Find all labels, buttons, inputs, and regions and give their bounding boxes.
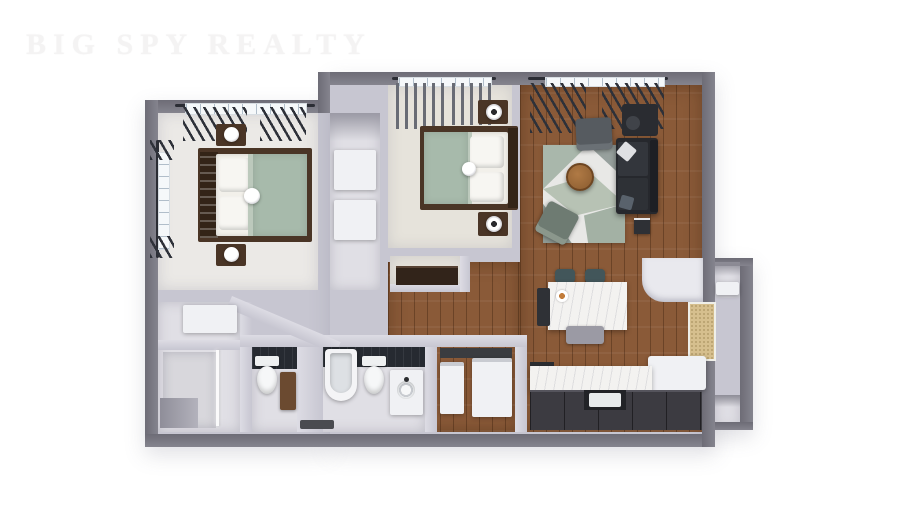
curtains-icon (150, 236, 174, 258)
closet-column-shadow (330, 113, 380, 141)
outer-wall-bottom (145, 434, 715, 447)
wood-vanity-cabinet (280, 372, 296, 410)
outer-wall-right (702, 72, 715, 447)
entry-door-mat (688, 302, 716, 361)
curtains-icon (260, 107, 306, 141)
gray-armchair (575, 117, 613, 151)
side-table (634, 218, 650, 234)
bed-headboard (508, 128, 518, 208)
curtains-icon (150, 140, 174, 160)
round-lamp-icon (486, 104, 502, 120)
wall-bath2-laundry (425, 347, 437, 432)
closet-shelf-box (183, 305, 237, 333)
floor-plan-render: BIG SPY REALTY (0, 0, 900, 506)
desk-chair (626, 116, 640, 130)
wall-hall-bathrooms (240, 335, 527, 347)
dresser (396, 266, 458, 285)
trash-bin (537, 288, 550, 326)
right-nook-shelf (716, 282, 739, 295)
round-lamp-icon (486, 216, 502, 232)
toilet (255, 356, 279, 366)
white-bench (648, 356, 706, 390)
wall-laundry-kitchen (515, 347, 527, 432)
bed-pillow (219, 158, 251, 192)
wall-dresser-nook-bottom (390, 284, 465, 292)
wall-closet-shower (158, 340, 240, 350)
washer (440, 362, 464, 414)
dining-chair (566, 326, 604, 344)
outer-wall-bump-right (740, 258, 753, 430)
fruit-plate (556, 290, 568, 302)
bar-stool (555, 269, 575, 283)
toilet (362, 356, 386, 366)
bar-stool (585, 269, 605, 283)
bathtub-basin (330, 353, 352, 393)
kitchen-sink-basin (589, 393, 621, 407)
sofa-backrest (650, 140, 658, 212)
faucet-icon (404, 377, 409, 382)
storage-nook-shadow (160, 398, 198, 428)
table-lamp-icon (224, 247, 239, 262)
round-coffee-table (566, 163, 594, 191)
round-pillow (244, 188, 260, 204)
bed-pillow (470, 172, 504, 202)
round-sink (397, 381, 415, 399)
outer-wall-step (318, 72, 330, 113)
wall-dresser-nook-right (460, 256, 470, 292)
wardrobe-shelf (334, 200, 376, 240)
watermark-text: BIG SPY REALTY (26, 28, 372, 62)
wall-showerroom-bath1 (240, 302, 252, 432)
outer-wall-bump-bottom (715, 422, 753, 430)
round-pillow (462, 162, 476, 176)
curtains-icon (396, 83, 444, 129)
right-nook-bottom-shadow (715, 395, 740, 407)
wardrobe-shelf (334, 150, 376, 190)
laundry-shelf (440, 348, 512, 358)
coat-closet (642, 258, 703, 302)
bed-pillow (470, 136, 504, 168)
kitchen-countertop (530, 366, 652, 392)
shower-glass-panel (216, 350, 219, 426)
dryer (472, 358, 512, 417)
table-lamp-icon (224, 127, 239, 142)
floor-mat (300, 420, 334, 429)
right-nook-top-shadow (715, 262, 740, 276)
